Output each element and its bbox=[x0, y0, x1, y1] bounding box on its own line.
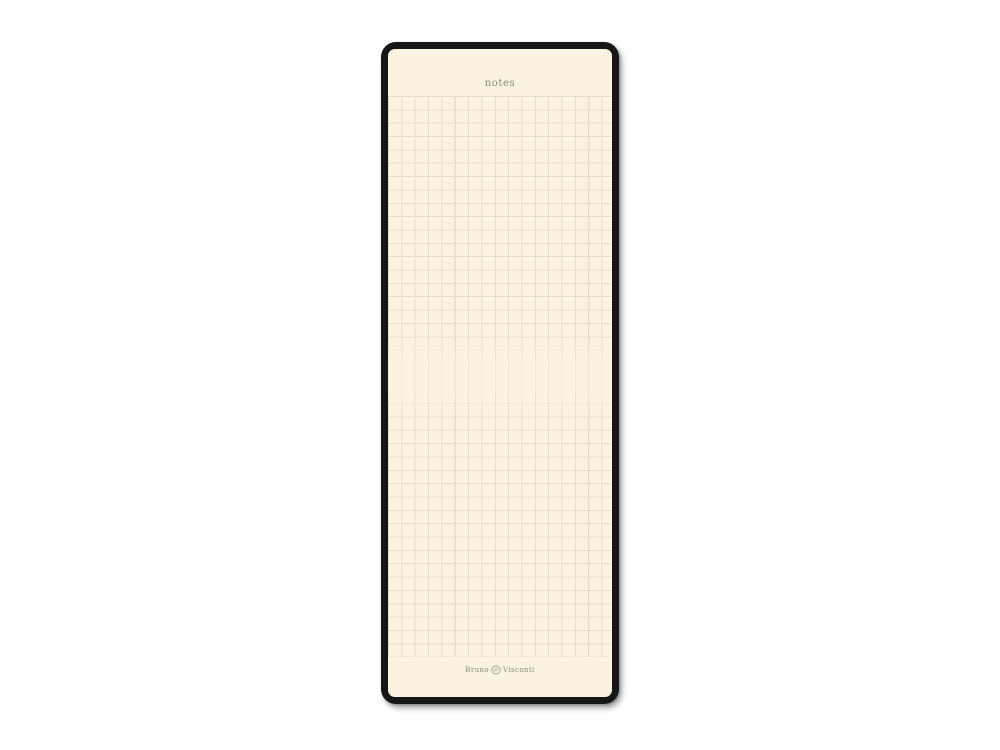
notes-title: notes bbox=[485, 79, 516, 89]
notepad-paper: notes Bruno Visconti bbox=[388, 49, 612, 697]
notepad-cover-frame: notes Bruno Visconti bbox=[381, 42, 619, 704]
bv-laurel-crest-icon bbox=[491, 665, 501, 675]
product-photo-canvas: notes Bruno Visconti bbox=[0, 0, 1000, 750]
grid-horizontal-lines bbox=[388, 96, 612, 657]
paper-footer: Bruno Visconti bbox=[388, 657, 612, 697]
brand-logo: Bruno Visconti bbox=[465, 665, 534, 675]
brand-word-left: Bruno bbox=[465, 667, 489, 674]
paper-header: notes bbox=[388, 49, 612, 96]
squared-grid-area bbox=[388, 96, 612, 657]
brand-word-right: Visconti bbox=[503, 667, 535, 674]
